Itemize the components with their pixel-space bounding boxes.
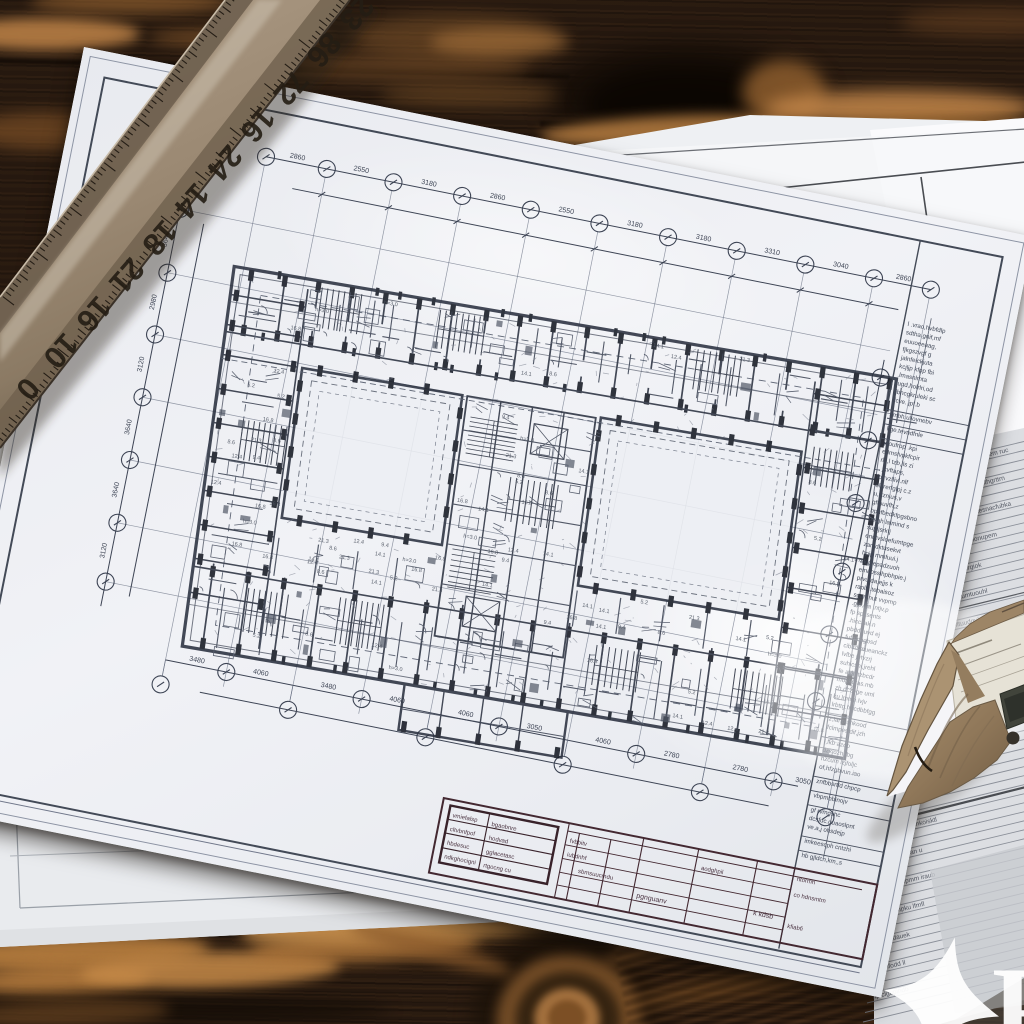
svg-text:P: P (992, 944, 1024, 1024)
